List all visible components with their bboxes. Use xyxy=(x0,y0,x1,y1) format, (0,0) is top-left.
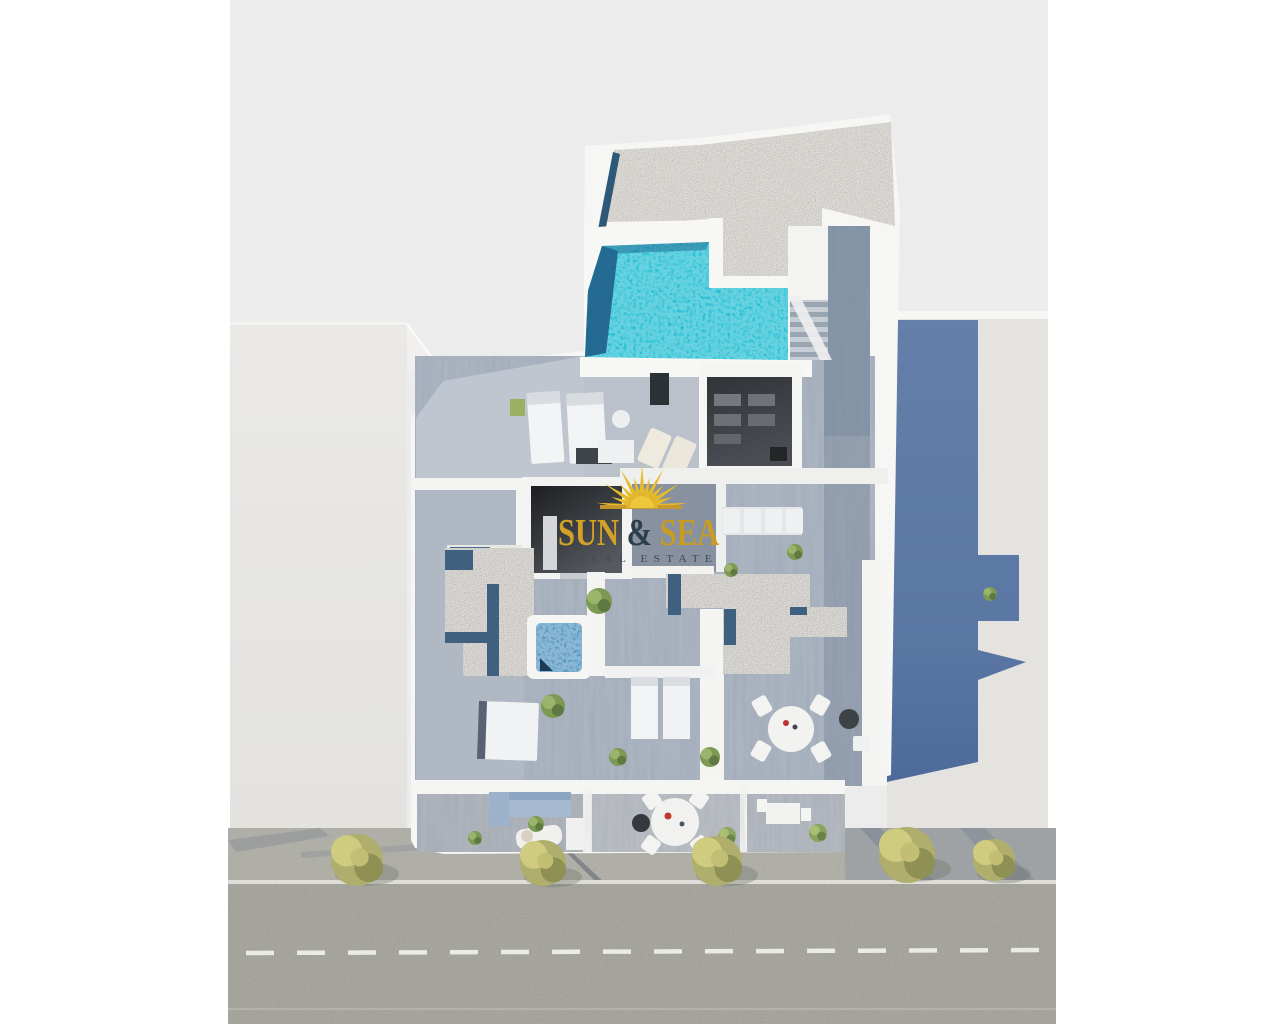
svg-text:SUN & SEA: SUN & SEA xyxy=(558,512,719,554)
svg-text:REAL ESTATE: REAL ESTATE xyxy=(577,553,718,565)
